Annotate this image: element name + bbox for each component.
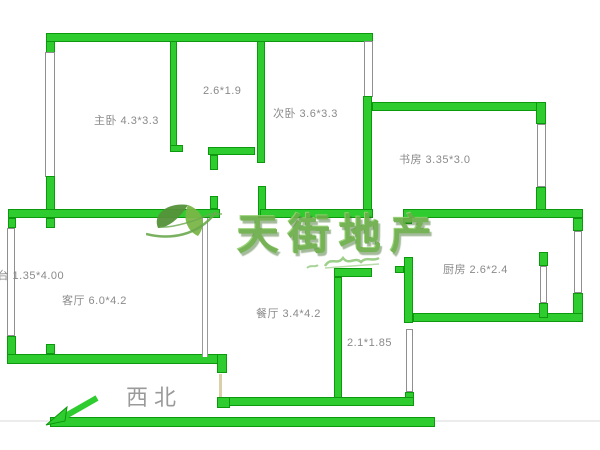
wall-balcony-stub-bottom (46, 344, 55, 354)
wall-closet-inner (208, 147, 255, 155)
study-label: 书房 3.35*3.0 (399, 151, 471, 167)
watermark-leaf-logo-icon (146, 198, 222, 254)
wall-bathroom-right (404, 257, 413, 323)
bathroom-label: 2.1*1.85 (347, 337, 392, 349)
wall-bed2-right (363, 96, 372, 218)
northwest-arrow-icon (40, 390, 110, 435)
bathroom-window (406, 329, 413, 392)
wall-kitchen-inner-bottom (539, 303, 548, 318)
wall-bathroom-left (334, 277, 342, 403)
kitchen-label: 厨房 2.6*2.4 (443, 261, 508, 277)
study-window (537, 124, 546, 187)
wall-hall-bottom-corner (217, 397, 230, 408)
wall-living-bottom (7, 354, 227, 364)
kitchen-right-window (574, 231, 582, 293)
kitchen-inner-window (540, 266, 547, 303)
wall-closet-left-foot (170, 145, 183, 152)
wall-closet-inner-stub (210, 155, 218, 170)
wall-right-col-top (573, 218, 583, 231)
wall-closet-left (170, 41, 177, 146)
wall-top (46, 33, 373, 42)
wall-left-ext-bottom (7, 336, 16, 355)
wall-balcony-stub-top (46, 218, 55, 228)
compass-direction-label: 西北 (126, 380, 182, 412)
second-bedroom-label: 次卧 3.6*3.3 (273, 105, 338, 121)
master-bedroom-window (45, 52, 55, 177)
wall-study-right-top (536, 102, 546, 124)
wall-kitchen-inner-top (539, 252, 548, 266)
wall-kitchen-bottom (413, 313, 583, 322)
master-bedroom-label: 主卧 4.3*3.3 (94, 112, 159, 128)
closet-label: 2.6*1.9 (203, 85, 241, 97)
floorplan-canvas: 主卧 4.3*3.3 2.6*1.9 次卧 3.6*3.3 书房 3.35*3.… (0, 0, 600, 450)
wall-closet-right (257, 41, 265, 163)
second-bedroom-window (364, 41, 373, 97)
dining-room-label: 餐厅 3.4*4.2 (256, 305, 321, 321)
wall-left-ext-top (8, 218, 16, 228)
wall-hall-bottom (217, 397, 414, 406)
living-room-label: 客厅 6.0*4.2 (62, 292, 127, 308)
wall-bathroom-door-notch (395, 266, 404, 273)
balcony-label: 阳台 1.35*4.00 (0, 267, 64, 283)
watermark-signature-squiggle (305, 252, 385, 276)
wall-study-top (372, 102, 545, 111)
entry-door-line (219, 374, 222, 397)
wall-living-corner-down (217, 354, 227, 373)
